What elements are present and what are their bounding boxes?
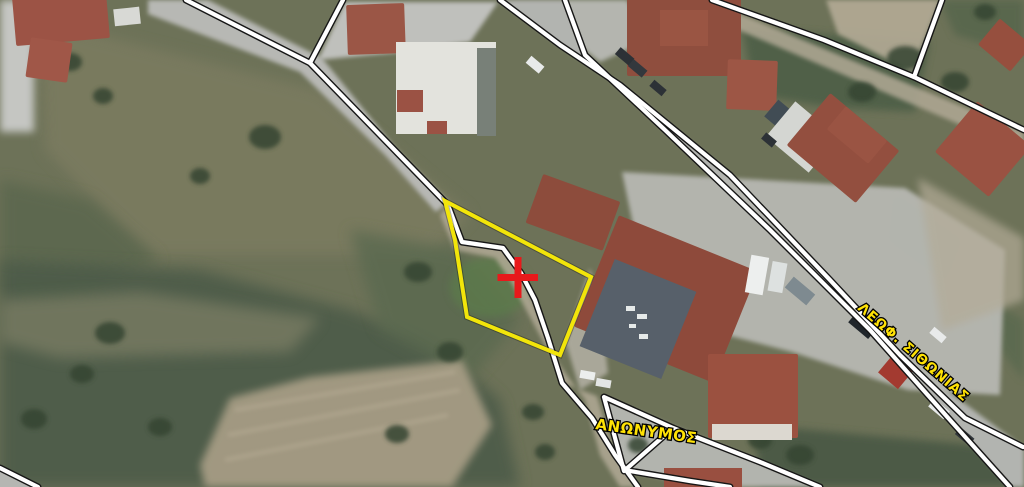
satellite-map: ΑΝΩΝΥΜΟΣ ΛΕΩΦ. ΣΙΘΩΝΙΑΣ [0, 0, 1024, 487]
shed-roof [113, 7, 141, 27]
house-roof [25, 37, 72, 82]
house-roof [726, 59, 778, 111]
map-canvas[interactable]: ΑΝΩΝΥΜΟΣ ΛΕΩΦ. ΣΙΘΩΝΙΑΣ [0, 0, 1024, 487]
